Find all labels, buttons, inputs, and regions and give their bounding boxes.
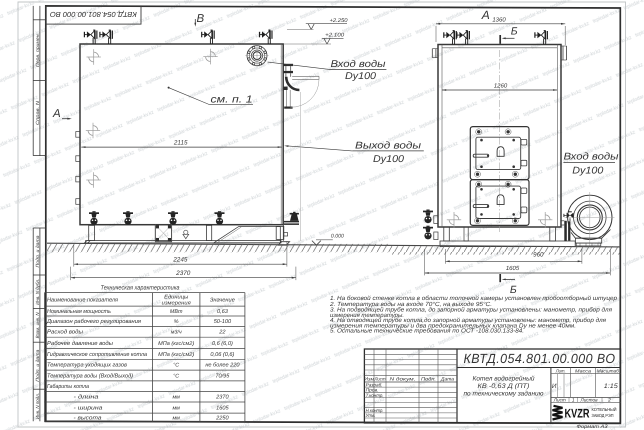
- svg-text:Dy100: Dy100: [345, 71, 377, 82]
- svg-text:50-100: 50-100: [214, 319, 232, 325]
- svg-text:Техническая характеристика: Техническая характеристика: [101, 285, 181, 292]
- svg-text:KVZR: KVZR: [565, 407, 590, 421]
- svg-text:°С: °С: [173, 363, 179, 369]
- svg-text:%: %: [174, 319, 179, 325]
- svg-text:Диапазон рабочего регулировани: Диапазон рабочего регулирования: [46, 318, 141, 325]
- svg-text:Перв. примен.: Перв. примен.: [35, 33, 40, 67]
- svg-text:мм: мм: [172, 415, 180, 421]
- svg-text:Инв. N дубл.: Инв. N дубл.: [35, 279, 40, 305]
- svg-text:Б: Б: [510, 284, 517, 296]
- svg-text:2370: 2370: [175, 270, 191, 277]
- svg-text:Расход воды: Расход воды: [47, 329, 84, 336]
- svg-text:Dy100: Dy100: [572, 165, 604, 176]
- svg-text:2: 2: [607, 398, 611, 404]
- svg-text:0,6 (6,0): 0,6 (6,0): [212, 340, 233, 347]
- svg-text:2115: 2115: [173, 140, 188, 147]
- svg-text:Температура воды (Вход/Выход): Температура воды (Вход/Выход): [47, 372, 133, 379]
- svg-text:1605: 1605: [216, 405, 229, 411]
- svg-text:Инв. N подл.: Инв. N подл.: [35, 393, 40, 419]
- svg-text:м3/ч: м3/ч: [171, 330, 182, 336]
- svg-text:5. Остальные технические треб: 5. Остальные технические требования по О…: [330, 328, 524, 335]
- svg-text:Лит.: Лит.: [555, 369, 566, 374]
- svg-text:Вход воды: Вход воды: [331, 59, 387, 70]
- svg-text:не более 220: не более 220: [205, 362, 240, 369]
- svg-text:- длина: - длина: [74, 394, 100, 401]
- svg-text:Температура уходящих газов: Температура уходящих газов: [47, 362, 127, 369]
- svg-text:Н.контр.: Н.контр.: [366, 408, 384, 414]
- svg-text:+2.100: +2.100: [325, 32, 344, 38]
- svg-text:Гидравлическое сопротивление к: Гидравлическое сопротивление котла: [47, 351, 148, 358]
- svg-text:Взам. инв. N: Взам. инв. N: [35, 312, 40, 339]
- svg-text:Подп. и дата: Подп. и дата: [35, 349, 40, 381]
- svg-text:1605: 1605: [506, 265, 520, 272]
- svg-text:КВ -0,63 Д (ПТ): КВ -0,63 Д (ПТ): [478, 383, 530, 390]
- svg-text:мм: мм: [172, 395, 180, 401]
- svg-text:ЗАВОД РЭП: ЗАВОД РЭП: [592, 413, 614, 418]
- svg-text:Лист: Лист: [553, 398, 566, 404]
- svg-text:Масштаб: Масштаб: [597, 369, 619, 374]
- svg-text:1:15: 1:15: [604, 383, 618, 390]
- svg-text:Т.контр.: Т.контр.: [366, 393, 384, 399]
- svg-text:Пров.: Пров.: [366, 388, 379, 394]
- svg-text:Листов: Листов: [580, 398, 598, 404]
- svg-text:И: И: [552, 383, 557, 390]
- svg-text:Разраб.: Разраб.: [366, 382, 383, 388]
- svg-text:Рабочее давление воды: Рабочее давление воды: [47, 340, 114, 347]
- svg-text:Справ. N: Справ. N: [35, 100, 40, 125]
- svg-text:1: 1: [572, 398, 575, 404]
- svg-text:Лист: Лист: [374, 377, 386, 382]
- svg-text:Котел водогрейный: Котел водогрейный: [473, 375, 535, 382]
- svg-text:Вход воды: Вход воды: [564, 152, 620, 163]
- svg-text:- ширина: - ширина: [74, 405, 104, 411]
- svg-text:Утв.: Утв.: [366, 413, 376, 419]
- svg-text:2245: 2245: [172, 256, 188, 263]
- svg-text:Масса: Масса: [575, 369, 592, 374]
- svg-text:Номинальная мощность: Номинальная мощность: [47, 309, 111, 315]
- svg-text:см. п. 1: см. п. 1: [211, 95, 253, 106]
- svg-text:Наименование показателя: Наименование показателя: [47, 298, 118, 304]
- svg-text:МПа (кгс/см2): МПа (кгс/см2): [158, 352, 194, 358]
- svg-text:В: В: [196, 13, 204, 25]
- svg-text:МВт: МВт: [170, 309, 183, 315]
- svg-text:1360: 1360: [492, 17, 506, 24]
- svg-text:А: А: [52, 108, 61, 120]
- svg-text:измерения: измерения: [162, 300, 191, 306]
- svg-text:1. На боковой стенке котла в: 1. На боковой стенке котла в области топ…: [330, 295, 618, 302]
- svg-text:2370: 2370: [215, 395, 229, 401]
- svg-text:Выход воды: Выход воды: [355, 141, 422, 152]
- svg-text:мм: мм: [172, 405, 180, 411]
- svg-text:°С: °С: [173, 373, 179, 379]
- svg-text:22: 22: [218, 330, 226, 336]
- svg-text:КОТЕЛЬНЫЙ: КОТЕЛЬНЫЙ: [592, 407, 617, 412]
- svg-text:КВТД.054.801.00.000 ВО: КВТД.054.801.00.000 ВО: [49, 10, 136, 19]
- svg-text:Dy100: Dy100: [373, 154, 405, 165]
- svg-text:- высота: - высота: [74, 415, 103, 421]
- svg-text:Габариты котла: Габариты котла: [47, 383, 90, 390]
- svg-text:0,06 (0,6): 0,06 (0,6): [210, 351, 234, 358]
- svg-text:+2.250: +2.250: [330, 18, 348, 24]
- svg-text:2250: 2250: [215, 415, 229, 421]
- svg-text:Формат А3: Формат А3: [577, 424, 608, 430]
- svg-text:Подп. и дата: Подп. и дата: [35, 235, 40, 267]
- svg-text:КВТД.054.801.00.000 ВО: КВТД.054.801.00.000 ВО: [464, 351, 616, 366]
- svg-text:N докум.: N докум.: [390, 377, 416, 383]
- svg-text:0,63: 0,63: [217, 309, 229, 315]
- svg-text:А: А: [481, 8, 490, 22]
- svg-text:1260: 1260: [494, 82, 508, 89]
- svg-text:Дата: Дата: [440, 377, 454, 383]
- svg-text:по техническому заданию: по техническому заданию: [464, 391, 544, 398]
- svg-text:0.000: 0.000: [331, 233, 344, 239]
- svg-text:МПа (кгс/см2): МПа (кгс/см2): [158, 341, 194, 347]
- svg-text:Б: Б: [511, 26, 518, 38]
- svg-text:70/95: 70/95: [215, 372, 230, 379]
- svg-text:Значение: Значение: [210, 298, 235, 304]
- svg-text:Подп.: Подп.: [421, 377, 436, 383]
